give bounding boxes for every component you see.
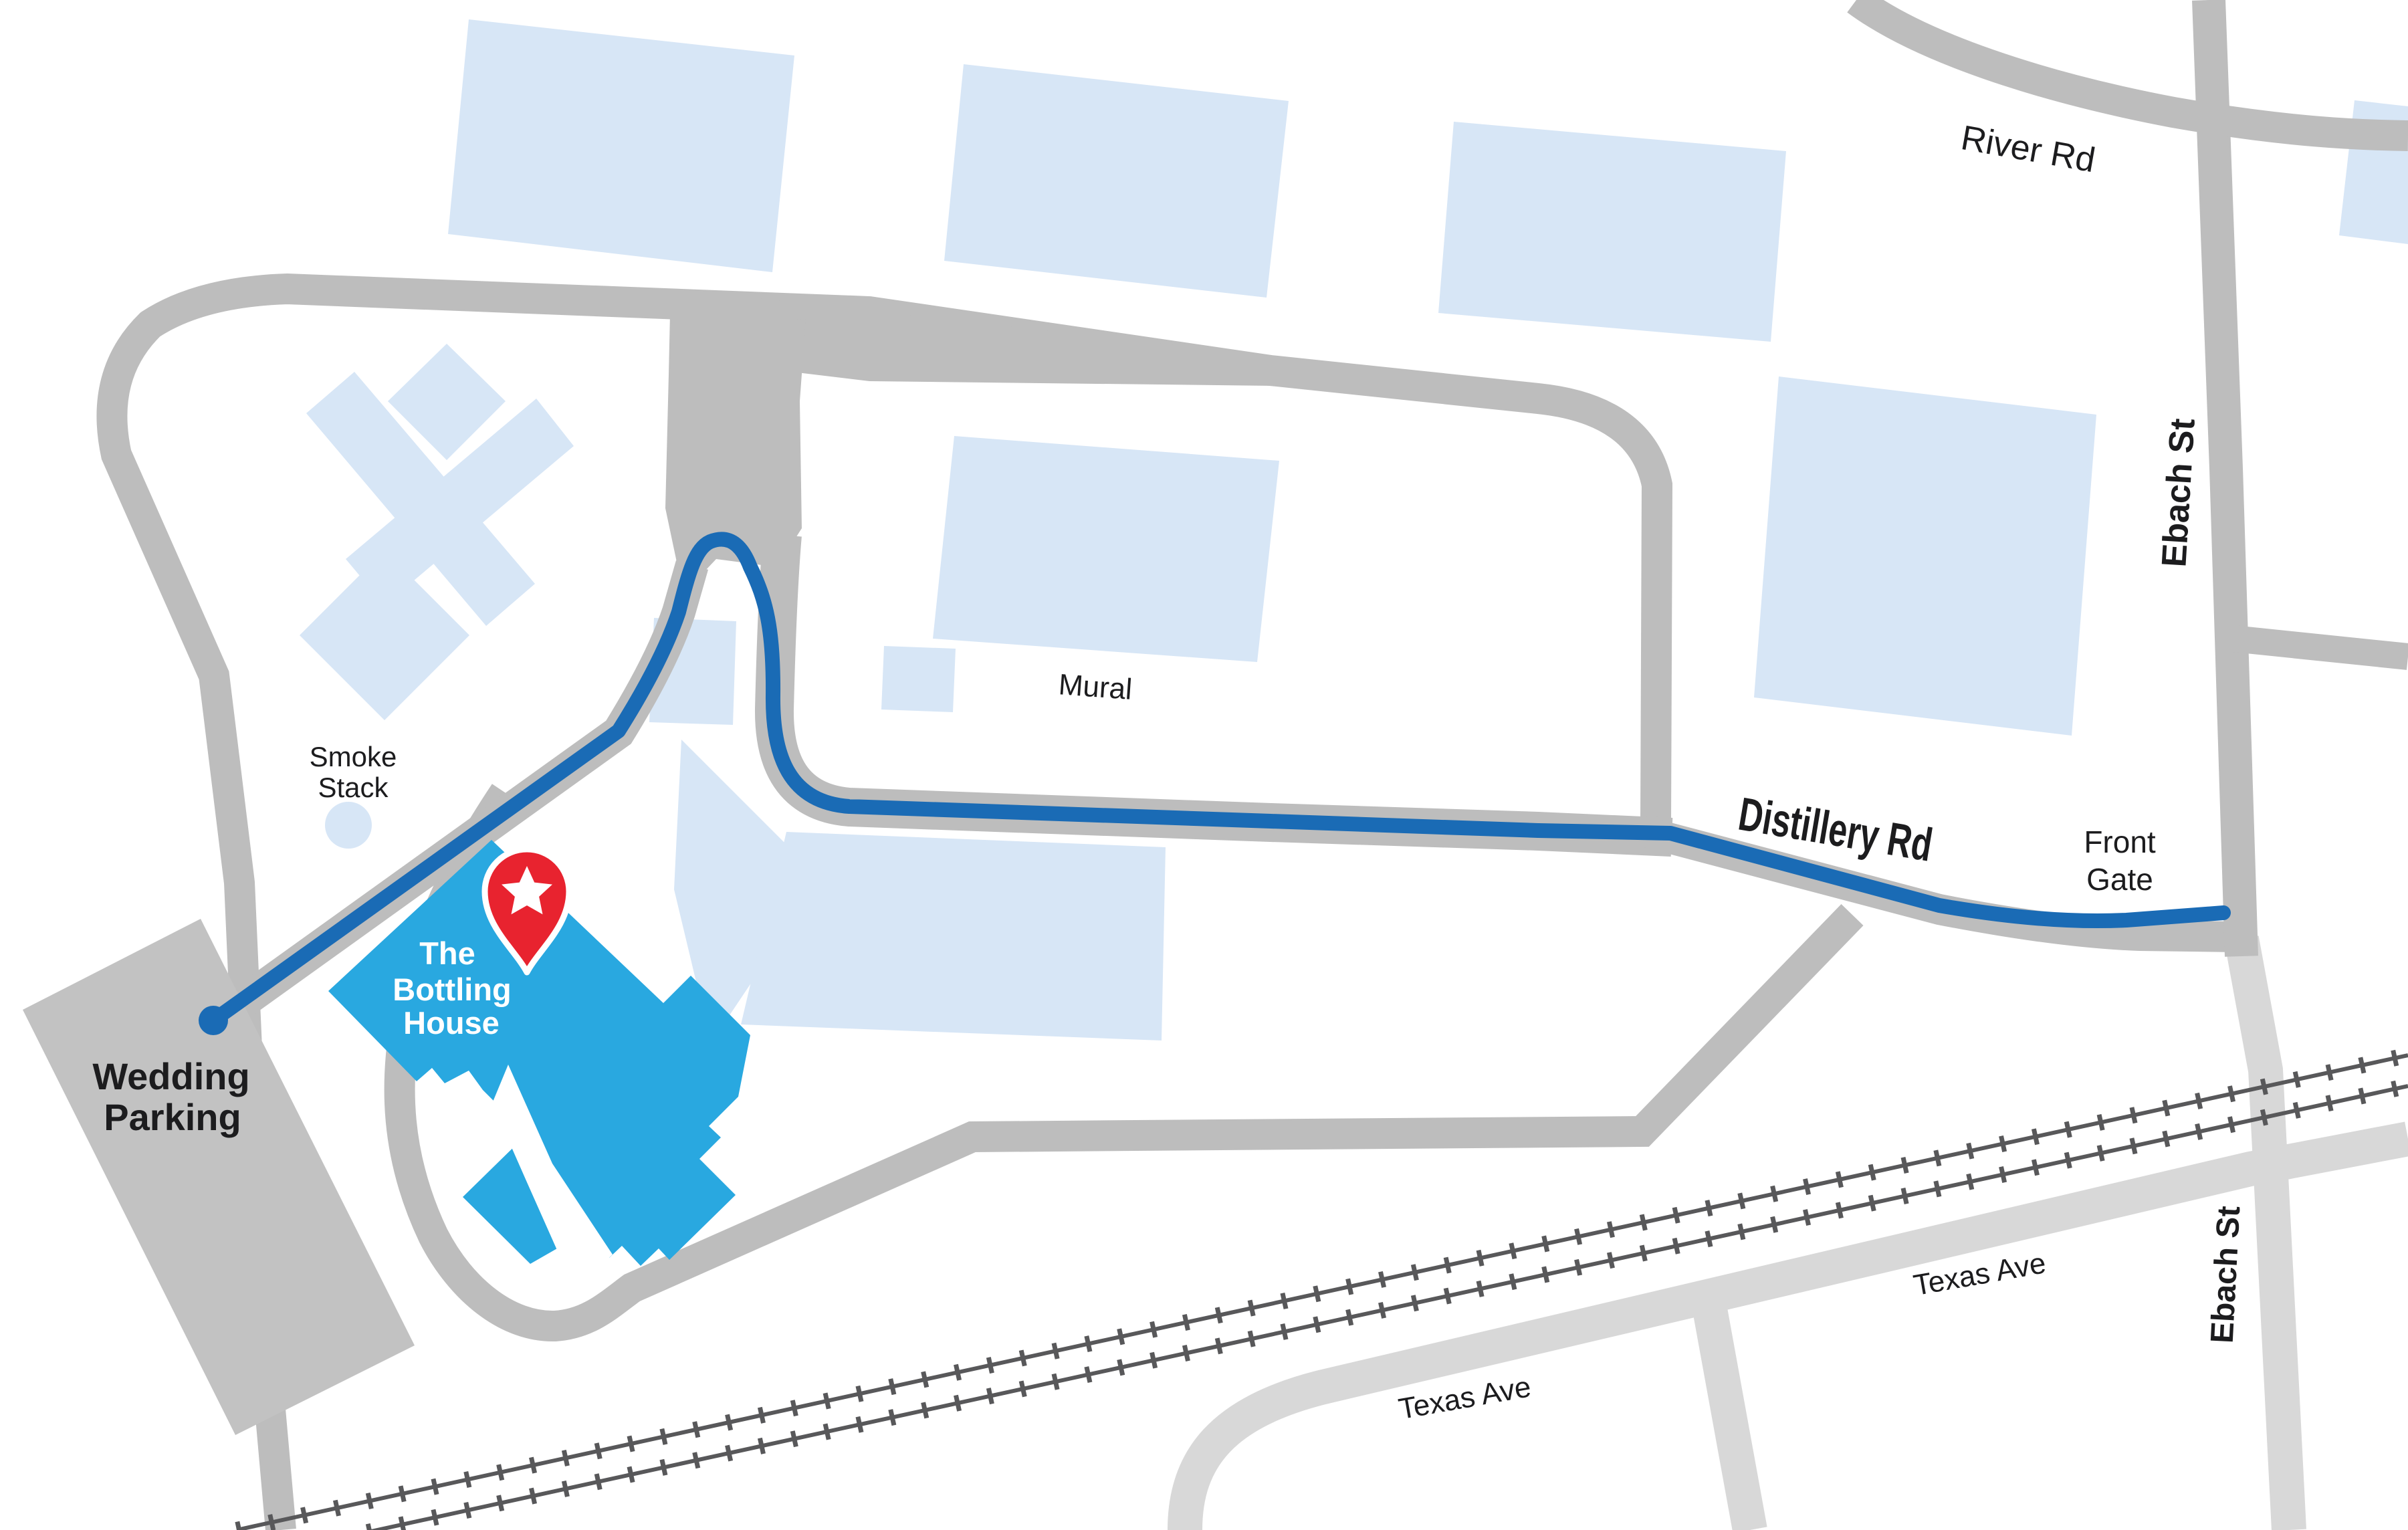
svg-text:Gate: Gate	[2086, 862, 2153, 897]
svg-text:Smoke: Smoke	[310, 741, 397, 772]
svg-text:Wedding: Wedding	[92, 1055, 249, 1097]
svg-text:Stack: Stack	[318, 772, 389, 803]
svg-text:Ebach St: Ebach St	[2205, 1205, 2248, 1344]
svg-text:Bottling: Bottling	[393, 972, 512, 1007]
svg-text:Parking: Parking	[104, 1096, 241, 1138]
svg-text:House: House	[403, 1005, 500, 1041]
svg-text:Front: Front	[2084, 825, 2156, 859]
svg-text:The: The	[419, 936, 475, 971]
svg-text:Mural: Mural	[1057, 668, 1133, 706]
